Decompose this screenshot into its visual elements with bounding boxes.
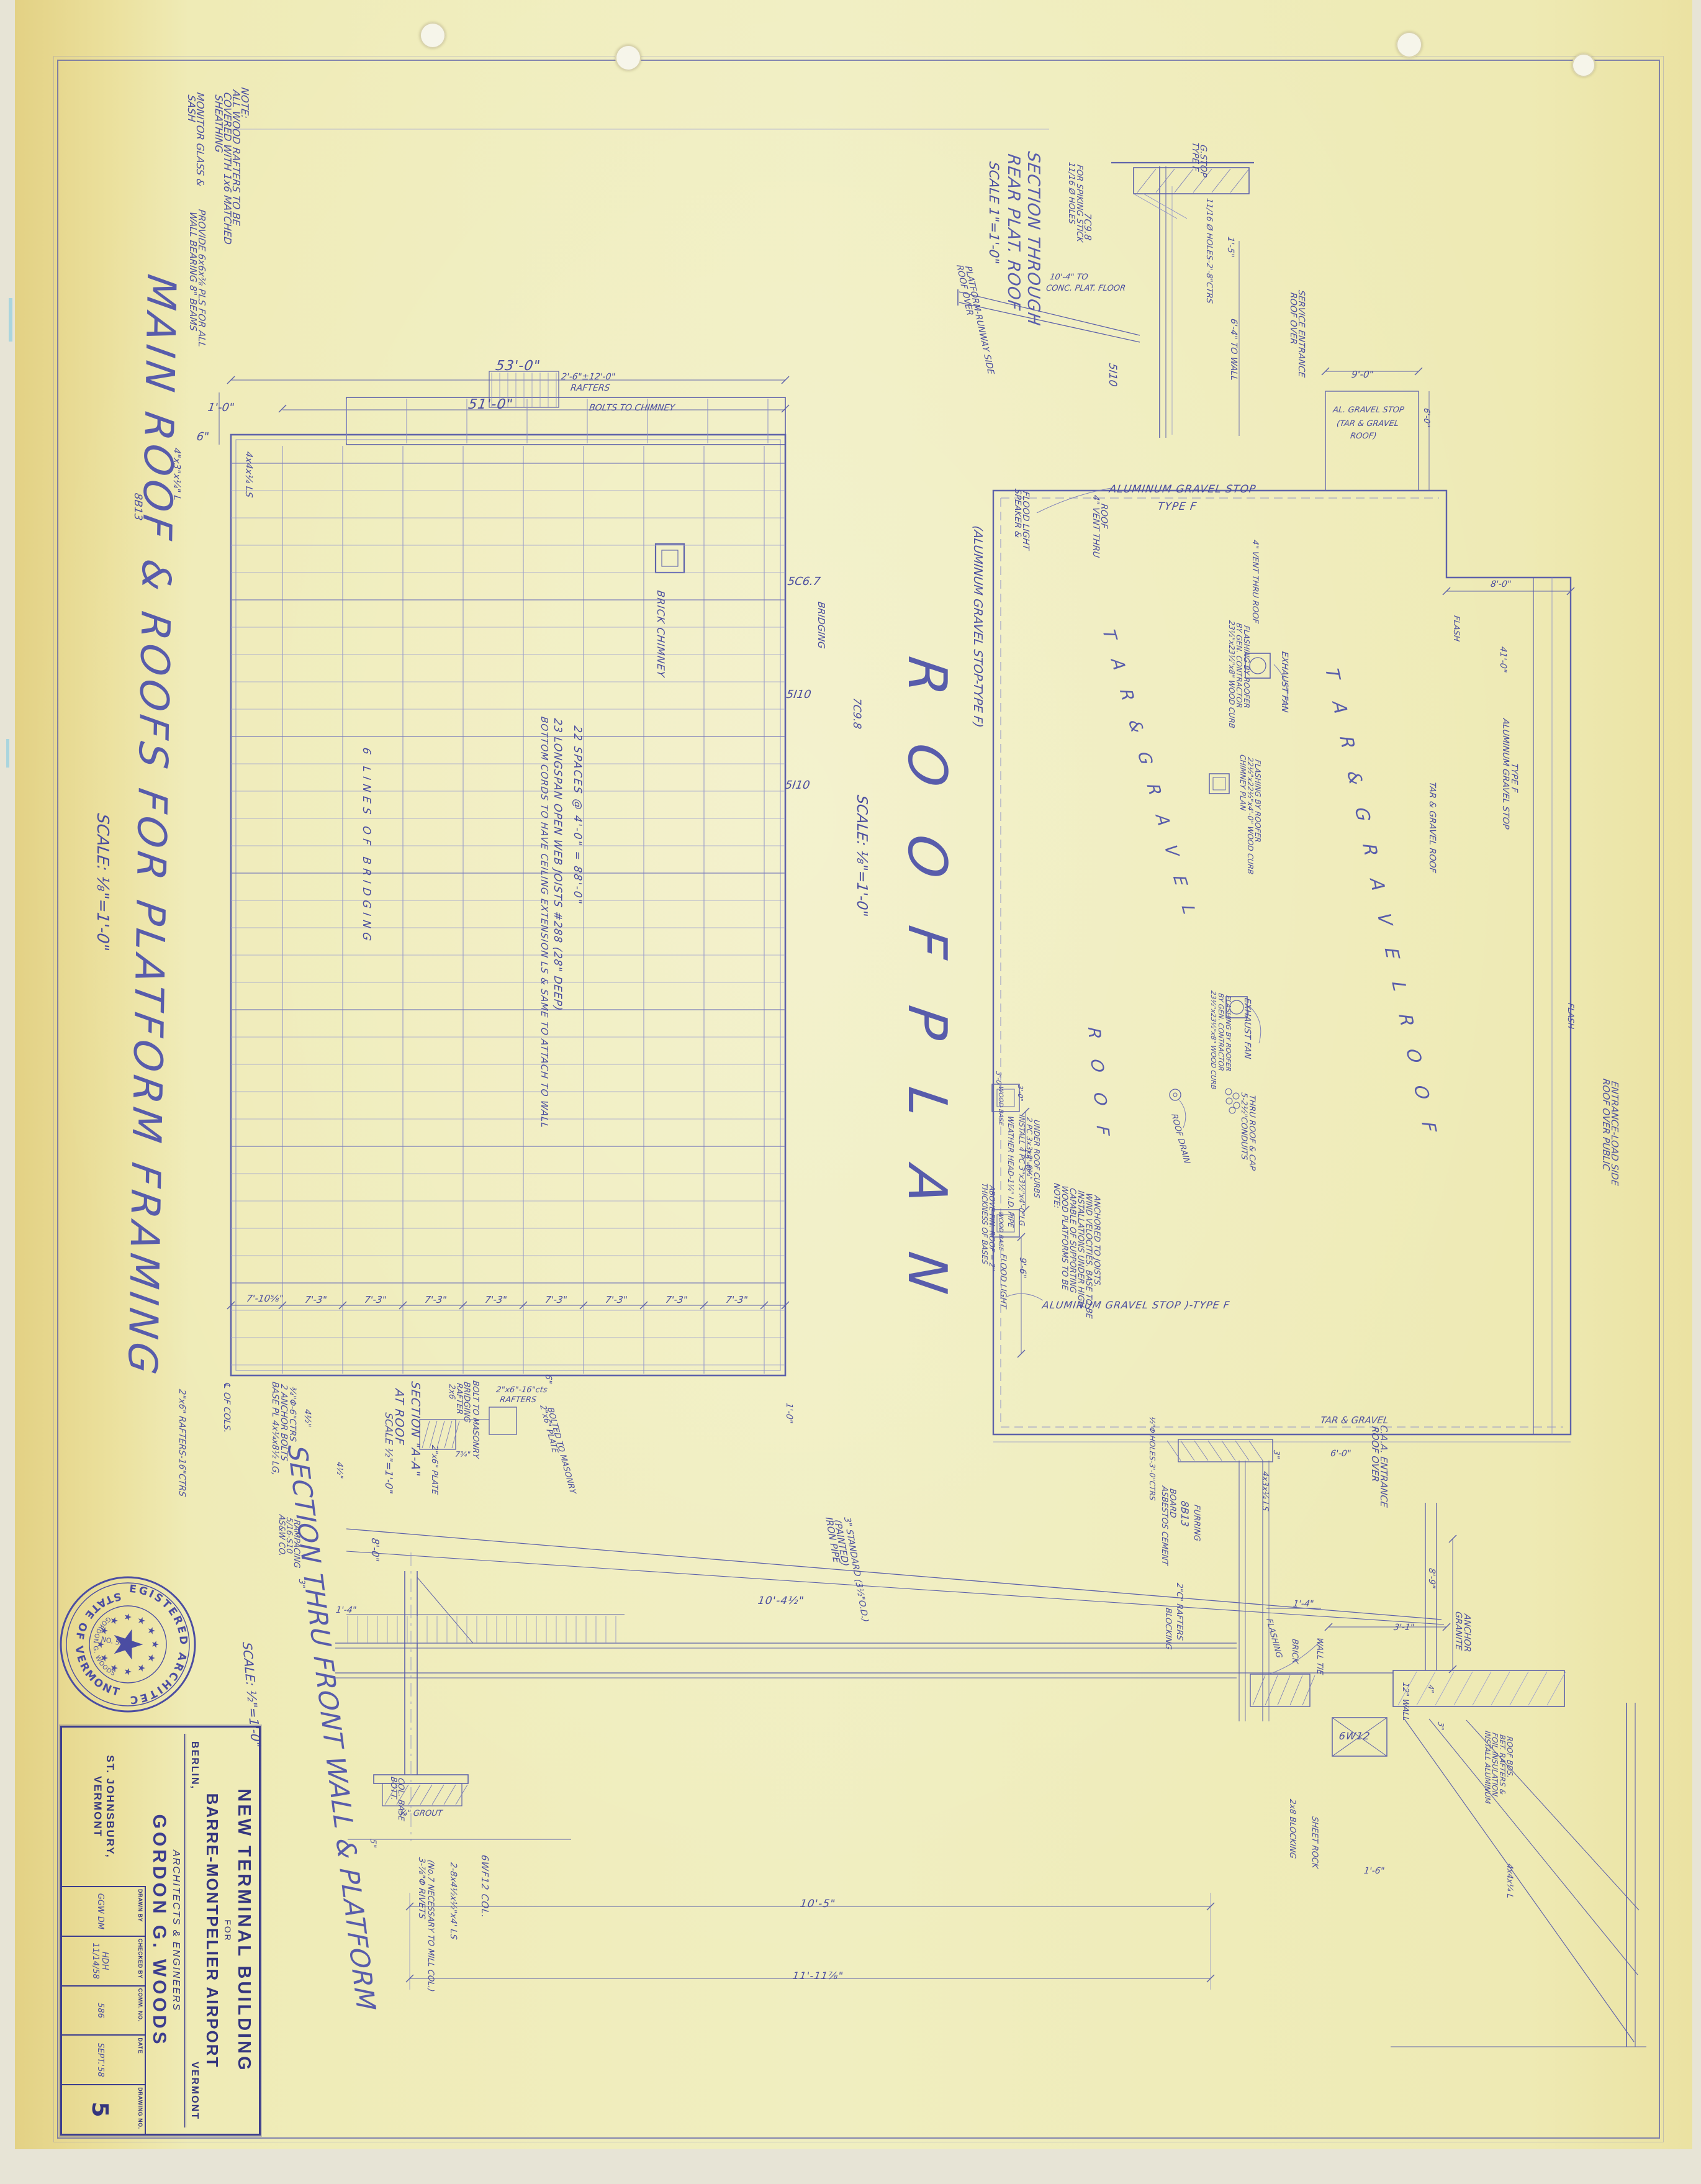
annotation-fp1: BRICK CHIMNEY (655, 590, 666, 679)
annotation-fp3b: BOTTOM CORDS TO HAVE CEILING EXTENSION L… (539, 716, 549, 1129)
annotation-a11: 4"x3"x¼" L (171, 447, 181, 501)
annotation-a4: 1'-0" (207, 402, 235, 414)
annotation-rw9: 2"C" RAFTERS (1175, 1582, 1183, 1641)
annotation-fp7: 5I10 (785, 689, 811, 701)
annotation-sa19: 1'-0" (784, 1402, 793, 1424)
annotation-rp30c: ROOF) (1350, 432, 1377, 441)
annotation-rp22: ALUMINUM GRAVEL STOP )-TYPE F (1042, 1300, 1230, 1311)
annotation-rp11: EXHAUST FAN (1242, 997, 1252, 1059)
annotation-br5: 4x4x¼ L (1505, 1863, 1514, 1899)
annotation-rp25: TAR & GRAVEL ROOF (1427, 781, 1437, 873)
annotation-ts5: 11/16 Ø HOLES-2'-8"CTRS (1204, 197, 1213, 304)
annotation-rp10b: THRU ROOF & CAP (1247, 1094, 1256, 1171)
annotation-a3a: 2'-6"±12'-0" (561, 373, 616, 382)
svg-text:★: ★ (122, 1667, 133, 1675)
annotation-rp23: FLASH (1451, 615, 1460, 642)
field-drawing-no-value: 5 (62, 2085, 137, 2134)
annotation-ts1b: G.STOP (1198, 144, 1207, 178)
field-checked-by-value: HDH 11/14/58 (62, 1937, 137, 1985)
annotation-rp4: EXHAUST FAN (1279, 651, 1289, 713)
field-drawing-no: DRAWING NO. 5 (62, 2085, 145, 2134)
annotation-rw17: 4" (1427, 1684, 1435, 1693)
annotation-br3: 1'-6" (1363, 1867, 1385, 1876)
annotation-rp32b: ENTRANCE-LOAD SIDE (1609, 1081, 1619, 1187)
annotation-t_rear2: REAR PLAT. ROOF (1004, 153, 1022, 312)
field-checked-by-label: CHECKED BY (137, 1937, 145, 1985)
annotation-rw20: BRICK (1290, 1638, 1299, 1664)
annotation-a3b: RAFTERS (570, 384, 610, 393)
annotation-a1: 53'-0" (495, 359, 541, 373)
annotation-rp12b: BY GEN. CONTRACTOR (1217, 992, 1224, 1071)
svg-text:★: ★ (109, 1616, 120, 1624)
annotation-rp1b: TYPE F (1157, 502, 1197, 513)
project-title: NEW TERMINAL BUILDING (233, 1728, 254, 2134)
annotation-b1: 7'-3" (304, 1295, 328, 1305)
annotation-sa10: 4½" (335, 1461, 343, 1479)
svg-text:★: ★ (109, 1664, 120, 1672)
annotation-rp28b: SERVICE ENTRANCE (1296, 289, 1306, 378)
annotation-sa18: 10'-4½" (757, 1596, 805, 1607)
annotation-a2: 51'-0" (467, 397, 514, 412)
annotation-sa8b: 2 ANCHOR BOLTS (279, 1384, 288, 1462)
annotation-br2: SHEET ROCK (1310, 1816, 1319, 1869)
annotation-rw5: 4x3x¼ LS (1260, 1470, 1269, 1511)
annotation-rp12c: FLASHING BY ROOFER (1224, 995, 1232, 1072)
annotation-rp14c: UNDER ROOF CURBS (1032, 1119, 1040, 1198)
annotation-rp16b: WOOD PLATFORMS TO BE (1060, 1185, 1068, 1290)
annotation-rp12: 23½"x23½"x8" WOOD CURB (1209, 990, 1217, 1090)
annotation-rp19: 15'-0" (1022, 1148, 1032, 1175)
annotation-b4: 7'-3" (484, 1295, 508, 1305)
annotation-lc5: 2-8x4½x½"x4' LS (448, 1862, 458, 1940)
annotation-sa3: BOLT TO MASONRY (471, 1380, 479, 1459)
svg-text:★: ★ (150, 1640, 161, 1648)
annotation-fp3: 23 LONGSPAN OPEN WEB JOISTS #288 (28" DE… (551, 717, 562, 1012)
annotation-sa_t1: SECTION "A-A" (408, 1380, 421, 1477)
annotation-sa12: ℄ OF COLS. (222, 1381, 231, 1434)
annotation-a12: 4x4x¼ LS (243, 451, 253, 498)
svg-text:★: ★ (136, 1664, 147, 1672)
annotation-sa11: 8'-0" (369, 1538, 380, 1562)
annotation-rp10: 5-2½"CONDUITS (1239, 1092, 1248, 1160)
annotation-rw12: 1'-4" (1293, 1600, 1314, 1609)
svg-text:★: ★ (146, 1626, 157, 1634)
annotation-sa15: 1'-4" (335, 1606, 357, 1615)
annotation-ts3: 7C9.8 (1082, 212, 1092, 241)
annotation-rp1: ALUMINUM GRAVEL STOP (1108, 484, 1257, 496)
blueprint-sheet: { "sheet": { "main_title": "MAIN ROOF & … (0, 0, 1701, 2184)
annotation-rp13a: WOOD BASE (997, 1086, 1004, 1126)
annotation-rw16: 12" WALL (1401, 1682, 1409, 1721)
annotation-rp16d: INSTALLATIONS UNDER HIGH (1076, 1190, 1085, 1308)
annotation-rp16c: CAPABLE OF SUPPORTING (1068, 1187, 1076, 1294)
annotation-lc2: ¾" GROUT (399, 1810, 443, 1818)
firm-role: ARCHITECTS & ENGINEERS (170, 1728, 181, 2134)
annotation-sa7: 7¾" (454, 1451, 471, 1459)
annotation-sa14: 3" (297, 1579, 305, 1588)
field-drawn-by-label: DRAWN BY (137, 1887, 145, 1936)
annotation-a7d: SHEATHING (213, 94, 223, 153)
annotation-sa6: 2"x6" PLATE (430, 1444, 438, 1495)
annotation-fp4: 6 LINES OF BRIDGING (360, 746, 371, 945)
annotation-b6: 7'-3" (605, 1295, 628, 1305)
annotation-fp8: 7C9.8 (850, 697, 862, 729)
annotation-b0: 7'-10⅝" (246, 1294, 284, 1304)
project-airport: BARRE-MONTPELIER AIRPORT (202, 1728, 222, 2134)
field-comm-no-value: 586 (62, 1987, 137, 2035)
annotation-fp5: 5C6.7 (787, 576, 821, 588)
svg-text:★: ★ (122, 1613, 133, 1621)
annotation-rw22: 6W12 (1338, 1731, 1371, 1742)
annotation-rp3b: ROOF (1099, 503, 1108, 529)
annotation-rw3: 6'-0" (1330, 1449, 1351, 1459)
field-drawn-by-value: GGW DM (62, 1887, 137, 1936)
annotation-rp21a: 3'-0" (995, 1071, 1002, 1088)
annotation-sa66: 6" (543, 1374, 553, 1384)
field-checked-by: CHECKED BY HDH 11/14/58 (62, 1937, 145, 1987)
annotation-b5: 7'-3" (544, 1295, 568, 1305)
annotation-t_roofplan: R O O F P L A N (899, 653, 955, 1313)
annotation-b8: 7'-3" (725, 1295, 749, 1305)
annotation-fp2: 22 SPACES @ 4'-0" = 88'-0" (571, 725, 582, 905)
annotation-rp18b: ABOVE FIN. ROOF = 2" (988, 1185, 996, 1271)
annotation-sa2: BRIDGING (462, 1381, 471, 1423)
annotation-sa4b: RAFTERS (499, 1396, 537, 1405)
svg-text:★: ★ (136, 1616, 147, 1624)
title-block-rule (184, 1734, 186, 2127)
svg-text:★: ★ (99, 1626, 110, 1634)
annotation-br1: 2x8 BLOCKING (1288, 1798, 1296, 1859)
annotation-ts6: 1'-5" (1225, 236, 1235, 258)
project-location-state: VERMONT (189, 2062, 200, 2120)
annotation-rw6: 8B13 (1179, 1500, 1189, 1528)
svg-text:★: ★ (95, 1640, 106, 1648)
title-block: NEW TERMINAL BUILDING FOR BARRE-MONTPELI… (60, 1726, 261, 2136)
annotation-a5: 6" (196, 432, 209, 443)
annotation-t_roofplan_note: (ALUMINUM GRAVEL STOP-TYPE F) (971, 525, 983, 728)
annotation-rp5c: FLASHING BY ROOFER (1242, 625, 1250, 709)
annotation-sa20: 10'-5" (799, 1899, 836, 1910)
annotation-rp16f: ANCHORED TO JOISTS. (1092, 1195, 1101, 1288)
field-drawn-by: DRAWN BY GGW DM (62, 1887, 145, 1937)
annotation-a8b: SASH (186, 94, 196, 123)
annotation-a10: 8B13 (132, 492, 143, 521)
annotation-rp13b: WOOD BASE (997, 1212, 1004, 1251)
annotation-fp9: 5I10 (784, 780, 810, 792)
annotation-rp2b: FLOOD LIGHT (1021, 491, 1030, 551)
annotation-ts4b: CONC. PLAT. FLOOR (1045, 284, 1126, 293)
annotation-sa_t3: SCALE ½"=1'-0" (383, 1412, 394, 1495)
annotation-rp24: ALUMINUM GRAVEL STOP (1500, 718, 1510, 830)
annotation-t_roofplan_scale: SCALE: ⅛"=1'-0" (854, 794, 869, 918)
annotation-rw11: ½"Φ HOLES-3'-0"CTRS (1148, 1416, 1156, 1501)
annotation-lc6: 3-⅞"Φ RIVETS (417, 1857, 426, 1919)
annotation-ts4: 10'-4" TO (1049, 273, 1088, 282)
annotation-rw21: WALL TIE (1315, 1637, 1324, 1675)
annotation-rp29: 9'-0" (1351, 370, 1374, 380)
annotation-rw15b: ANCHOR (1462, 1613, 1471, 1652)
annotation-sa8c: ¾"Φ-6"CTRS (287, 1386, 297, 1442)
project-location-city: BERLIN, (189, 1741, 200, 1790)
annotation-lc4: 6WF12 COL. (479, 1854, 489, 1919)
annotation-sa13c: RAMPACING (292, 1519, 300, 1569)
field-comm-no: COMM. NO. 586 (62, 1987, 145, 2036)
annotation-b3: 7'-3" (424, 1295, 448, 1305)
annotation-rp35c: FLASHING BY ROOFER (1253, 759, 1261, 843)
field-drawing-no-label: DRAWING NO. (137, 2085, 145, 2134)
annotation-rw15: GRANITE (1453, 1611, 1463, 1651)
title-block-fields: DRAWN BY GGW DM CHECKED BY HDH 11/14/58 … (62, 1886, 146, 2134)
annotation-rp26: FLASH (1566, 1002, 1574, 1030)
annotation-t_rear1: SECTION THROUGH (1024, 150, 1042, 327)
annotation-rp16: NOTE: (1052, 1182, 1060, 1208)
seal-center-star: ★ (104, 1626, 150, 1662)
annotation-b7: 7'-3" (665, 1295, 688, 1305)
annotation-rw2b: C.A.A. ENTRANCE (1378, 1425, 1388, 1508)
annotation-a17: BOLTS TO CHIMNEY (589, 404, 675, 413)
annotation-fp6: BRIDGING (816, 601, 826, 650)
annotation-rw13: 3'-1" (1393, 1623, 1415, 1633)
sheet-title-scale: SCALE: ⅛"=1'-0" (94, 812, 111, 952)
annotation-rw7: FURRING (1192, 1504, 1201, 1542)
project-for: FOR (223, 1728, 233, 2134)
annotation-rw8: ASBESTOS CEMENT (1160, 1485, 1168, 1566)
annotation-t_rear3: SCALE 1"=1'-0" (987, 161, 1001, 265)
annotation-rp24b: TYPE F (1509, 763, 1518, 793)
annotation-ts9: 5I10 (1106, 362, 1117, 387)
annotation-lc3: 5" (368, 1838, 377, 1848)
annotation-rp20: 9'-6" (1017, 1257, 1027, 1279)
annotation-sa8: BASE PL 4x¼x8½ LG, (270, 1381, 279, 1476)
annotation-rw10: BLOCKING (1163, 1607, 1172, 1650)
annotation-rp27: 8'-0" (1490, 580, 1512, 589)
annotation-lc6b: (No.7 NECESSARY TO MILL COL.) (426, 1859, 435, 1992)
field-comm-no-label: COMM. NO. (137, 1987, 145, 2035)
annotation-rw14: 8'-9" (1427, 1567, 1436, 1589)
annotation-rp21b: 3'-0" (1016, 1084, 1024, 1102)
field-date-value: SEPT.'58 (62, 2036, 137, 2084)
annotation-sa21: 11'-11⅞" (792, 1971, 844, 1982)
annotation-rp6: 4" VENT THRU ROOF (1250, 539, 1259, 624)
annotation-ts2: 11/16 Ø HOLES (1067, 161, 1075, 225)
annotation-sa4: 2"x6"-16"cts (495, 1386, 548, 1395)
annotation-b2: 7'-3" (364, 1295, 387, 1305)
annotation-rp30: AL. GRAVEL STOP (1332, 406, 1404, 415)
firm-name: GORDON G. WOODS (148, 1728, 169, 2134)
annotation-rw4: 3" (1271, 1449, 1280, 1459)
firm-city: ST. JOHNSBURY, VERMONT (62, 1728, 146, 1886)
svg-text:★: ★ (99, 1654, 110, 1662)
annotation-rp15: WEATHER HEAD-1¼" I.D. PIPE (1006, 1115, 1014, 1228)
annotation-rp17: FLOOD LIGHT (998, 1253, 1007, 1309)
annotation-rp30b: (TAR & GRAVEL (1336, 420, 1399, 428)
field-date: DATE SEPT.'58 (62, 2036, 145, 2085)
svg-text:★: ★ (146, 1654, 157, 1662)
annotation-a6b: WALL BEARING 8" BEAMS (187, 211, 197, 332)
field-date-label: DATE (137, 2036, 145, 2084)
annotation-rp31: 6'-0" (1422, 407, 1430, 428)
annotation-rw18: 3" (1437, 1721, 1445, 1731)
annotation-rp34: 41'-0" (1498, 646, 1507, 673)
annotation-ts7: 6'-4" TO WALL (1229, 318, 1238, 381)
annotation-rw8b: BOARD (1168, 1488, 1176, 1518)
annotation-a15: 2"x6" RAFTERS-16"CTRS (177, 1389, 186, 1497)
annotation-sa9: 4½" (302, 1408, 312, 1428)
annotation-br4d: ROOF BDS. (1505, 1736, 1514, 1778)
